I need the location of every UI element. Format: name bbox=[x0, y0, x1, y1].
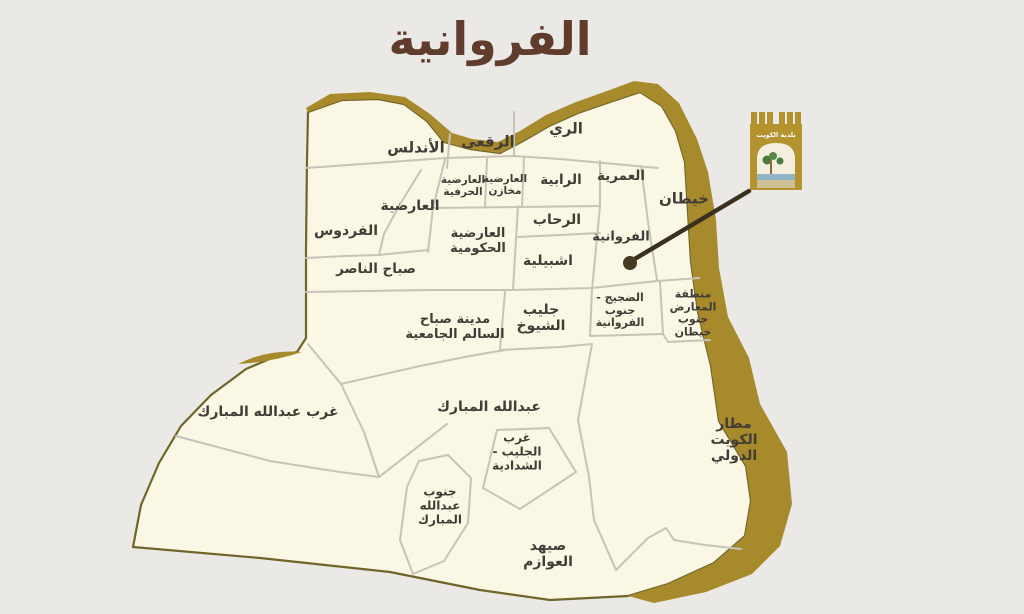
location-dot bbox=[623, 256, 637, 270]
farwaniya-governorate-map-page: الفروانية bbox=[0, 0, 1024, 614]
map-graphic: بلدية الكويت bbox=[0, 0, 1024, 614]
kuwait-municipality-emblem-icon: بلدية الكويت bbox=[750, 112, 802, 190]
emblem-text: بلدية الكويت bbox=[756, 131, 795, 139]
